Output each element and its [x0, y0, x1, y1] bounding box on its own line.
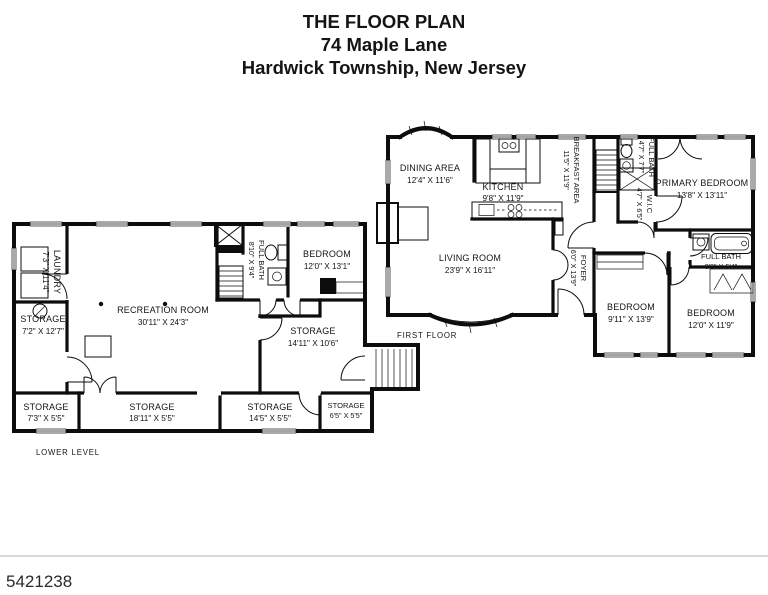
- sink-icon: [268, 268, 286, 285]
- window-symbol: [385, 267, 391, 297]
- room-label-upper-bath: FULL BATH 4'7" X 7'7": [637, 137, 656, 177]
- room-label-wic: W.I.C 4'7" X 6'5": [635, 188, 654, 221]
- svg-text:4'7" X 7'7": 4'7" X 7'7": [637, 141, 646, 174]
- column-dot-icon: [99, 302, 103, 306]
- room-dims-storage-b1: 7'3" X 5'5": [27, 414, 64, 423]
- room-label-laundry: LAUNDRY 7'3" X 11'4": [41, 250, 62, 294]
- svg-text:LAUNDRY: LAUNDRY: [52, 250, 62, 294]
- svg-text:W.I.C: W.I.C: [645, 195, 654, 214]
- toilet-icon: [621, 139, 632, 158]
- lower-level-plan: RECREATION ROOM 30'11" X 24'3" STORAGE 7…: [11, 221, 418, 457]
- room-dims-storage-b3: 14'5" X 5'5": [249, 414, 291, 423]
- title-line-3: Hardwick Township, New Jersey: [242, 57, 527, 78]
- room-dims-hall-bath: 8'0" X 5'4": [705, 262, 738, 271]
- svg-text:4'7" X 6'5": 4'7" X 6'5": [635, 188, 644, 221]
- svg-text:FOYER: FOYER: [579, 255, 588, 282]
- room-label-foyer: FOYER 6'0" X 13'9": [569, 250, 588, 287]
- photo-id: 5421238: [6, 572, 72, 591]
- room-label-breakfast: BREAKFAST AREA 11'5" X 11'9": [562, 137, 581, 205]
- window-symbol: [30, 221, 62, 227]
- room-label-lower-full-bath: FULL BATH 8'10" X 9'4": [247, 240, 266, 280]
- sink-icon: [693, 234, 709, 250]
- svg-text:6'0" X 13'9": 6'0" X 13'9": [569, 250, 578, 287]
- room-dims-bedroom-b: 12'0" X 11'9": [688, 321, 734, 330]
- room-dims-kitchen: 9'8" X 11'9": [482, 194, 523, 203]
- room-dims-storage-b4: 6'5" X 5'5": [330, 411, 363, 420]
- room-label-recreation: RECREATION ROOM: [117, 305, 209, 315]
- stair-wing-icon: [376, 349, 412, 387]
- window-symbol: [333, 221, 359, 227]
- title-block: THE FLOOR PLAN 74 Maple Lane Hardwick To…: [242, 11, 527, 78]
- bedroom-b-closet-icon: [710, 269, 753, 293]
- window-symbol: [712, 352, 744, 358]
- window-symbol: [750, 158, 756, 190]
- closet-box-icon: [320, 278, 336, 294]
- window-symbol: [640, 352, 658, 358]
- lower-stairs-icon: [219, 266, 243, 298]
- fireplace-icon: [377, 203, 428, 243]
- room-label-kitchen: KITCHEN: [483, 182, 524, 192]
- room-label-bedroom-a: BEDROOM: [607, 302, 655, 312]
- first-floor-caption: FIRST FLOOR: [397, 331, 457, 340]
- room-label-storage-b3: STORAGE: [247, 402, 292, 412]
- bathtub-icon: [711, 234, 752, 254]
- svg-text:BREAKFAST AREA: BREAKFAST AREA: [572, 137, 581, 205]
- room-label-primary: PRIMARY BEDROOM: [656, 178, 749, 188]
- window-symbol: [604, 352, 634, 358]
- floor-plan-page: THE FLOOR PLAN 74 Maple Lane Hardwick To…: [0, 0, 768, 595]
- room-dims-recreation: 30'11" X 24'3": [138, 318, 188, 327]
- window-symbol: [696, 134, 718, 140]
- floor-plan-drawing: THE FLOOR PLAN 74 Maple Lane Hardwick To…: [0, 0, 768, 595]
- room-label-storage-mid: STORAGE: [290, 326, 335, 336]
- window-symbol: [676, 352, 706, 358]
- room-dims-lower-bedroom: 12'0" X 13'1": [304, 262, 350, 271]
- first-stairs-icon: [596, 150, 618, 192]
- hall-bath-fixtures: [693, 234, 752, 254]
- upper-bath-fixtures: [620, 139, 633, 172]
- sink-icon: [620, 159, 633, 172]
- window-symbol: [385, 160, 391, 184]
- foyer-closet-icon: [555, 221, 563, 235]
- window-symbol: [724, 134, 746, 140]
- first-floor-plan: DINING AREA 12'4" X 11'6" KITCHEN 9'8" X…: [377, 121, 756, 358]
- bedroom-a-closet-icon: [597, 255, 643, 269]
- window-symbol: [36, 428, 66, 434]
- window-symbol: [297, 221, 325, 227]
- room-label-dining: DINING AREA: [400, 163, 460, 173]
- room-label-bedroom-b: BEDROOM: [687, 308, 735, 318]
- room-dims-storage-b2: 18'11" X 5'5": [129, 414, 175, 423]
- window-symbol: [96, 221, 128, 227]
- room-dims-living: 23'9" X 16'11": [445, 266, 495, 275]
- room-dims-storage-mid: 14'11" X 10'6": [288, 339, 338, 348]
- kitchen-counters-icon: [472, 139, 562, 218]
- title-line-1: THE FLOOR PLAN: [303, 11, 465, 32]
- closet-rod-icon: [336, 282, 364, 293]
- room-dims-dining: 12'4" X 11'6": [407, 176, 453, 185]
- window-symbol: [262, 428, 296, 434]
- lower-level-caption: LOWER LEVEL: [36, 448, 100, 457]
- room-label-living: LIVING ROOM: [439, 253, 501, 263]
- room-label-storage-b4: STORAGE: [328, 401, 365, 410]
- svg-text:11'5" X 11'9": 11'5" X 11'9": [562, 150, 571, 190]
- window-symbol: [170, 221, 202, 227]
- svg-text:FULL BATH: FULL BATH: [647, 137, 656, 177]
- room-label-storage-b2: STORAGE: [129, 402, 174, 412]
- svg-text:7'3" X 11'4": 7'3" X 11'4": [41, 251, 50, 292]
- room-label-storage-b1: STORAGE: [23, 402, 68, 412]
- room-dims-primary: 13'8" X 13'11": [677, 191, 727, 200]
- room-dims-bedroom-a: 9'11" X 13'9": [608, 315, 654, 324]
- room-label-storage-left: STORAGE: [20, 314, 65, 324]
- svg-text:FULL BATH: FULL BATH: [257, 240, 266, 280]
- freezer-icon: [85, 336, 111, 357]
- toilet-icon: [265, 245, 287, 260]
- footer: 5421238: [0, 556, 768, 591]
- window-symbol: [11, 248, 17, 270]
- room-label-lower-bedroom: BEDROOM: [303, 249, 351, 259]
- room-label-hall-bath: FULL BATH: [701, 252, 741, 261]
- room-dims-storage-left: 7'2" X 12'7": [22, 327, 64, 336]
- lower-chimney-icon: [215, 224, 243, 253]
- title-line-2: 74 Maple Lane: [321, 34, 447, 55]
- window-symbol: [263, 221, 291, 227]
- svg-text:8'10" X 9'4": 8'10" X 9'4": [247, 242, 256, 279]
